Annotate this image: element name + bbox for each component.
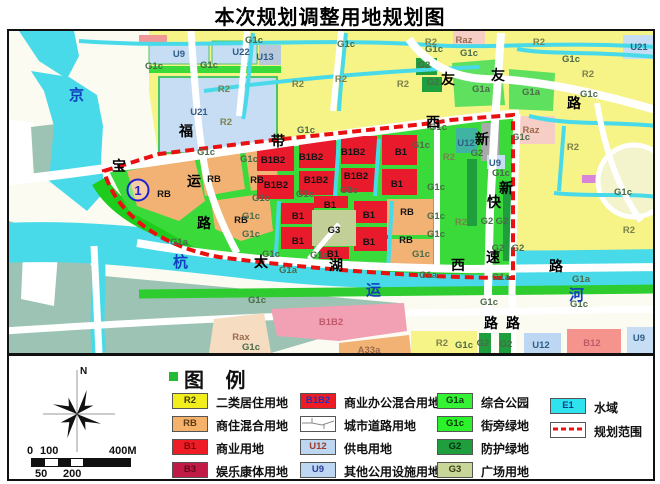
- parcel-code-G1a: G1a: [419, 270, 438, 281]
- planning-map-page: { "title": "本次规划调整用地规划图", "map": { "code…: [0, 0, 660, 484]
- parcel-code-RB: RB: [157, 189, 171, 200]
- parcel-code-B1: B1: [391, 179, 404, 190]
- parcel-code-R2: R2: [582, 69, 594, 80]
- road-name-char-xinlu: 路: [506, 315, 521, 331]
- parcel-code-G1c: G1c: [252, 193, 270, 204]
- unlabeled-parcel: [9, 119, 34, 179]
- parcel-code-G1c: G1c: [412, 249, 430, 260]
- parcel-code-B1B2: B1B2: [264, 180, 288, 191]
- parcel-code-G1a: G1a: [279, 265, 298, 276]
- parcel-code-G1c: G1c: [580, 89, 598, 100]
- road-name-char-xinkuaisulu: 快: [487, 194, 502, 210]
- parcel-code-G1c: G1c: [242, 211, 260, 222]
- parcel-code-G2: G2: [481, 216, 494, 227]
- swatch-RB: RB: [172, 416, 208, 432]
- parcel-code-B1: B1: [324, 200, 337, 211]
- parcel-code-G1c: G1c: [512, 132, 530, 143]
- parcel-code-G1c: G1c: [240, 154, 258, 165]
- road-name-char-youyoulu: 友: [441, 71, 455, 87]
- parcel-code-G1c: G1c: [427, 229, 445, 240]
- parcel-code-G2: G2: [496, 216, 509, 227]
- swatch-G2: G2: [437, 439, 473, 455]
- parcel-G2-strip: [467, 159, 477, 226]
- parcel-code-R2: R2: [455, 217, 467, 228]
- scale-400m: 400M: [109, 445, 137, 457]
- parcel-code-B1B2: B1B2: [299, 152, 323, 163]
- parcel-code-A33a: A33a: [358, 345, 381, 353]
- parcel-code-G1c: G1c: [614, 187, 632, 198]
- parcel-code-B1: B1: [363, 237, 376, 248]
- swatch-B3: B3: [172, 462, 208, 478]
- parcel-code-B1B2: B1B2: [344, 171, 368, 182]
- parcel-code-Raz: Raz: [456, 35, 473, 46]
- parcel-code-G1c: G1c: [242, 342, 260, 353]
- parcel-code-R2: R2: [567, 142, 579, 153]
- parcel-code-R2: R2: [533, 37, 545, 48]
- swatch-B1B2: B1B2: [300, 393, 336, 409]
- parcel-code-RB: RB: [250, 175, 264, 186]
- parcel-code-R2: R2: [218, 84, 230, 95]
- parcel-code-G1c: G1c: [492, 168, 510, 179]
- swatch-city-road: [300, 416, 336, 432]
- swatch-G1c: G1c: [437, 416, 473, 432]
- page-title: 本次规划调整用地规划图: [0, 1, 660, 30]
- parcel-code-G1c: G1c: [562, 54, 580, 65]
- road-name-char-taihuxilu: 湖: [329, 257, 343, 273]
- parcel-code-U12: U12: [532, 340, 549, 351]
- road-name-char-taihuxilu: 太: [254, 254, 269, 270]
- parcel-code-G2: G2: [500, 339, 513, 350]
- compass-north-label: N: [80, 366, 87, 377]
- road-name-char-fuyunlu: 路: [197, 215, 212, 231]
- parcel-code-G2: G2: [477, 338, 490, 349]
- road-name-char-xinlu: 新: [499, 180, 513, 196]
- parcel-code-G1c: G1c: [145, 61, 163, 72]
- parcel-code-G2: G2: [427, 77, 440, 88]
- parcel-code-G1c: G1c: [340, 185, 358, 196]
- swatch-G3: G3: [437, 462, 473, 478]
- parcel-code-G1a: G1a: [572, 274, 591, 285]
- parcel-code-B1B2: B1B2: [319, 317, 343, 328]
- parcel-code-G1c: G1c: [427, 182, 445, 193]
- water-name-char: 河: [569, 286, 584, 304]
- legend-bullet-icon: [169, 372, 178, 381]
- parcel-code-G1a: G1a: [170, 237, 189, 248]
- parcel-code-R2: R2: [397, 79, 409, 90]
- parcel-code-G1c: G1c: [242, 229, 260, 240]
- parcel-code-R2: R2: [292, 79, 304, 90]
- parcel-code-G1c: G1c: [248, 295, 266, 306]
- parcel-code-G1c: G1c: [425, 44, 443, 55]
- road-name-char-taihuxilu: 路: [549, 258, 564, 274]
- parcel-code-G1c: G1c: [460, 48, 478, 59]
- parcel-code-R2: R2: [623, 225, 635, 236]
- parcel-code-G1a: G1a: [472, 84, 491, 95]
- parcel-code-G1a: G1a: [522, 87, 541, 98]
- parcel-code-G1c: G1c: [480, 297, 498, 308]
- parcel-code-RB: RB: [207, 174, 221, 185]
- road-name-char-fuyunlu: 运: [187, 173, 201, 189]
- parcel-code-U13: U13: [256, 52, 273, 63]
- scale-bar-segments: [31, 458, 131, 467]
- parcel-code-G1c: G1c: [427, 211, 445, 222]
- legend-title: 图 例: [184, 364, 254, 393]
- swatch-B1: B1: [172, 439, 208, 455]
- parcel-code-G1c: G1c: [337, 39, 355, 50]
- parcel-code-U21: U21: [630, 42, 648, 53]
- parcel-code-G1a: G1a: [492, 272, 511, 283]
- map-canvas: 1 U9U22U13U21U21U12U12U9U9RazRazRaxA33aB…: [9, 31, 653, 353]
- scale-0: 0: [27, 445, 33, 457]
- swatch-U12: U12: [300, 439, 336, 455]
- parcel-code-R2: R2: [220, 117, 232, 128]
- parcel-code-R2: R2: [335, 74, 347, 85]
- parcel-code-B1: B1: [292, 236, 305, 247]
- scale-200: 200: [63, 468, 81, 480]
- road-name-char-youyoulu: 友: [491, 67, 505, 83]
- planning-map: 1 U9U22U13U21U21U12U12U9U9RazRazRaxA33aB…: [7, 29, 655, 355]
- water-name-char: 京: [69, 86, 84, 104]
- parcel-code-B1B2: B1B2: [341, 147, 365, 158]
- parcel-code-B12: B12: [583, 338, 600, 349]
- parcel-code-G1c: G1c: [245, 35, 263, 46]
- swatch-G1a: G1a: [437, 393, 473, 409]
- scale-50: 50: [35, 468, 47, 480]
- parcel-code-G2: G2: [512, 243, 525, 254]
- parcel-code-B1: B1: [395, 147, 408, 158]
- swatch-R2: R2: [172, 393, 208, 409]
- parcel-code-U9: U9: [173, 49, 185, 60]
- parcel-code-G1c: G1c: [200, 60, 218, 71]
- road-name-char-xinkuaisulu: 路: [484, 315, 499, 331]
- parcel-code-RB: RB: [400, 207, 414, 218]
- marker-1-label: 1: [134, 183, 141, 198]
- legend: 图 例 N 0 100 400M 50 200 R2 二类居住用地 RB 商住混…: [7, 355, 655, 481]
- road-name-char-xinkuaisulu: 新: [475, 131, 489, 147]
- parcel-code-B1B2: B1B2: [261, 155, 285, 166]
- parcel-code-B1B2: B1B2: [304, 175, 328, 186]
- parcel-code-G1c: G1c: [197, 147, 215, 158]
- parcel-code-B1: B1: [292, 211, 305, 222]
- parcel-code-G1c: G1c: [412, 140, 430, 151]
- parcel-code-U9: U9: [633, 333, 645, 344]
- parcel-code-U22: U22: [232, 47, 249, 58]
- road-name-char-fuyunlu: 福: [178, 123, 193, 139]
- parcel-code-G2: G2: [471, 148, 484, 159]
- road-name-char-baodaixilu: 带: [271, 133, 285, 149]
- water-name-char: 杭: [173, 253, 188, 271]
- water-name-char: 运: [366, 282, 381, 299]
- parcel-code-U21: U21: [190, 107, 208, 118]
- swatch-planning-range: [550, 422, 586, 438]
- road-name-char-youyoulu: 路: [567, 95, 582, 111]
- parcel-code-G2: G2: [418, 60, 431, 71]
- compass-rose-icon: N: [33, 362, 123, 454]
- road-name-char-xinkuaisulu: 速: [486, 249, 500, 265]
- parcel-code-R2: R2: [436, 338, 448, 349]
- parcel-code-G1c: G1c: [455, 340, 473, 351]
- scale-100: 100: [40, 445, 58, 457]
- parcel-code-RB: RB: [399, 235, 413, 246]
- parcel-code-R2: R2: [443, 152, 455, 163]
- swatch-E1: E1: [550, 398, 586, 414]
- road-name-char-baodaixilu: 西: [426, 114, 440, 130]
- parcel-code-B1: B1: [363, 210, 376, 221]
- swatch-U9: U9: [300, 462, 336, 478]
- parcel-code-G3: G3: [328, 225, 341, 236]
- parcel-code-G1c: G1c: [310, 250, 328, 261]
- parcel-code-G1c: G1c: [296, 189, 314, 200]
- parcel-code-G1c: G1c: [297, 125, 315, 136]
- road-name-char-baodaixilu: 宝: [112, 158, 126, 174]
- road-name-char-taihuxilu: 西: [451, 257, 465, 273]
